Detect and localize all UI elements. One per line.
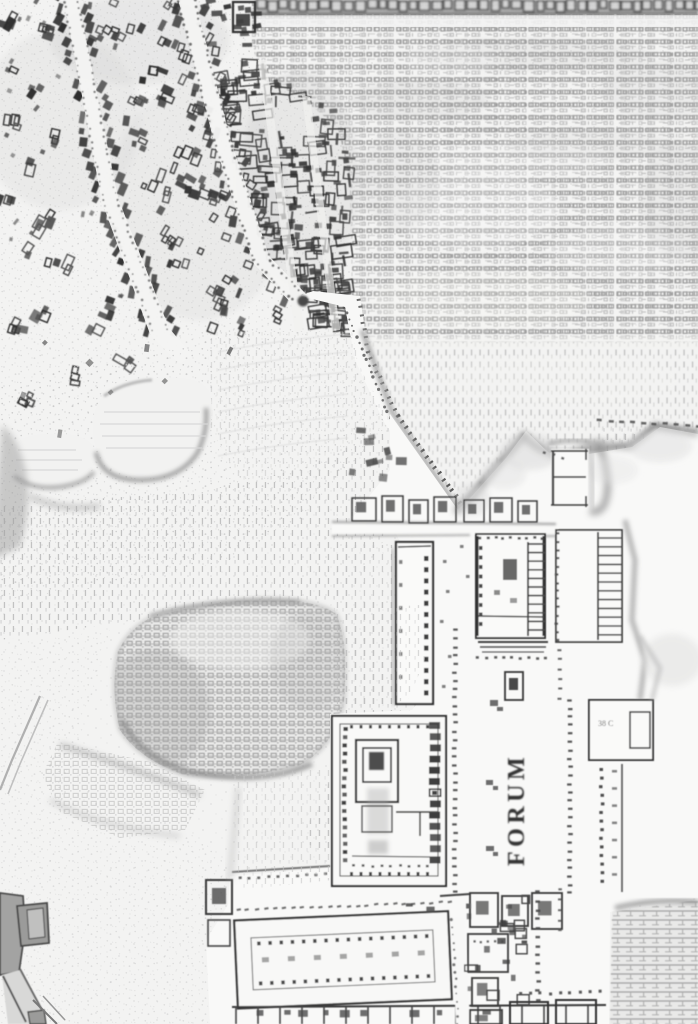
svg-text:FORUM: FORUM — [504, 753, 530, 866]
svg-text:38 C: 38 C — [598, 719, 613, 728]
